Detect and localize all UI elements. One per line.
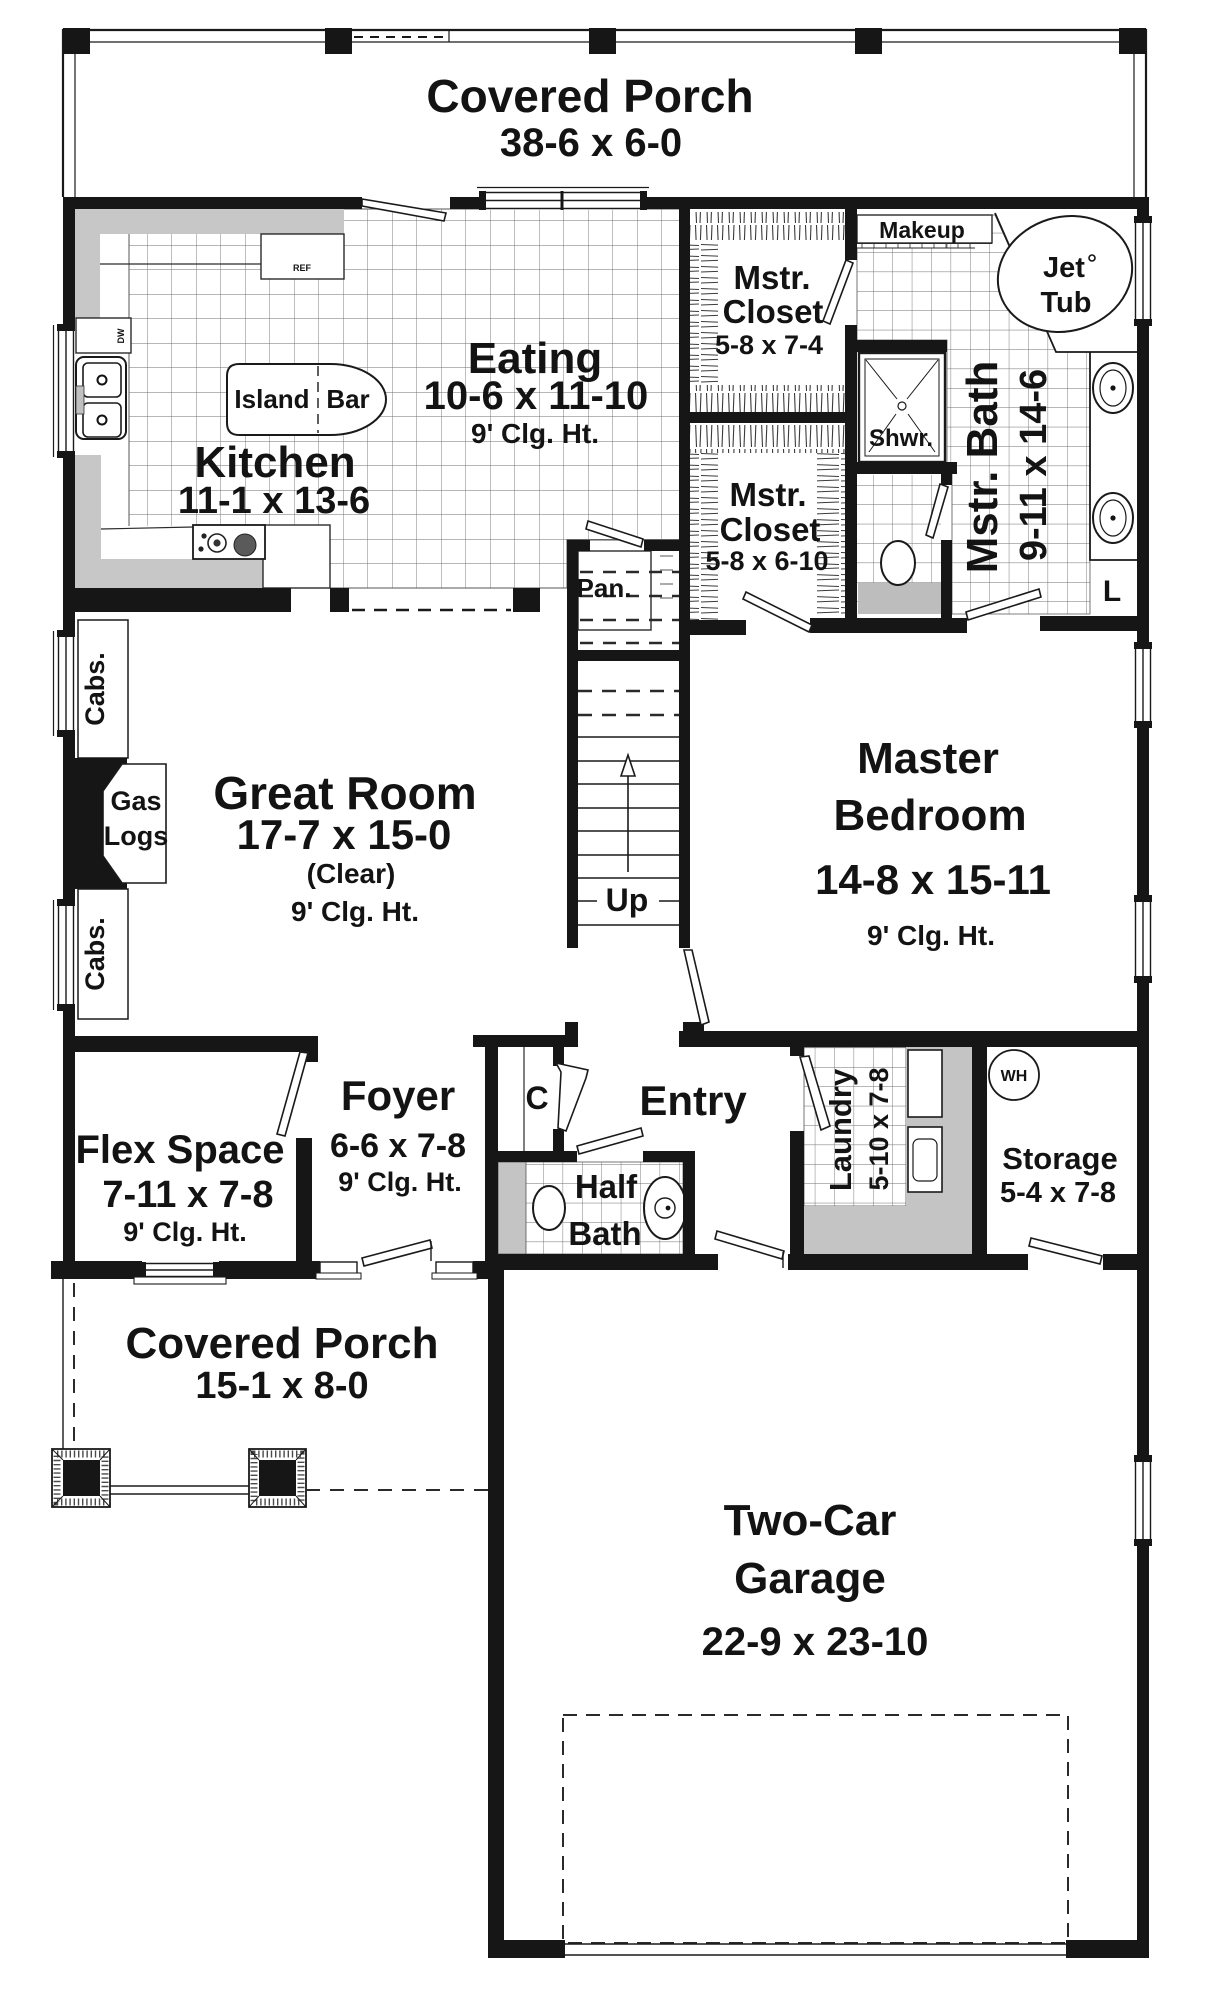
svg-text:Cabs.: Cabs. (80, 652, 110, 726)
svg-text:5-10 x 7-8: 5-10 x 7-8 (864, 1067, 894, 1190)
svg-text:9' Clg. Ht.: 9' Clg. Ht. (338, 1167, 461, 1197)
svg-text:Master: Master (857, 734, 999, 783)
svg-text:5-8 x 6-10: 5-8 x 6-10 (705, 546, 828, 576)
svg-text:Covered Porch: Covered Porch (426, 70, 753, 122)
svg-text:6-6 x 7-8: 6-6 x 7-8 (330, 1127, 466, 1165)
svg-text:Closet: Closet (723, 293, 824, 330)
svg-text:Half: Half (575, 1168, 638, 1205)
svg-text:9' Clg. Ht.: 9' Clg. Ht. (291, 896, 419, 927)
svg-text:Bar: Bar (326, 384, 369, 414)
svg-text:Flex Space: Flex Space (75, 1128, 284, 1172)
svg-text:Laundry: Laundry (823, 1068, 858, 1191)
svg-text:REF: REF (293, 263, 312, 273)
svg-text:15-1 x 8-0: 15-1 x 8-0 (195, 1365, 368, 1407)
svg-text:Two-Car: Two-Car (724, 1496, 897, 1545)
svg-text:9-11 x 14-6: 9-11 x 14-6 (1013, 369, 1055, 561)
svg-text:5-8 x 7-4: 5-8 x 7-4 (715, 330, 823, 360)
svg-text:5-4 x 7-8: 5-4 x 7-8 (1000, 1177, 1116, 1209)
svg-text:Closet: Closet (720, 511, 821, 548)
svg-text:11-1 x 13-6: 11-1 x 13-6 (178, 480, 370, 522)
svg-text:DW: DW (116, 328, 126, 343)
svg-text:9' Clg. Ht.: 9' Clg. Ht. (123, 1217, 246, 1247)
svg-text:Bath: Bath (568, 1215, 641, 1252)
svg-text:Covered Porch: Covered Porch (126, 1319, 439, 1368)
svg-text:14-8 x 15-11: 14-8 x 15-11 (815, 856, 1051, 903)
svg-text:38-6 x 6-0: 38-6 x 6-0 (500, 121, 682, 165)
svg-text:Pan.: Pan. (577, 573, 632, 603)
svg-text:Mstr. Bath: Mstr. Bath (958, 361, 1007, 574)
svg-text:Entry: Entry (639, 1077, 747, 1124)
svg-text:Cabs.: Cabs. (80, 917, 110, 991)
svg-text:Mstr.: Mstr. (729, 476, 806, 513)
svg-text:Island: Island (234, 384, 309, 414)
svg-text:Logs: Logs (104, 821, 169, 851)
svg-text:C: C (525, 1080, 548, 1116)
svg-text:Garage: Garage (734, 1554, 886, 1603)
svg-text:Shwr.: Shwr. (869, 425, 933, 452)
svg-text:7-11 x 7-8: 7-11 x 7-8 (102, 1174, 273, 1216)
svg-text:17-7 x 15-0: 17-7 x 15-0 (237, 811, 452, 858)
svg-text:10-6 x 11-10: 10-6 x 11-10 (424, 374, 649, 418)
svg-text:9' Clg. Ht.: 9' Clg. Ht. (471, 418, 599, 449)
svg-text:Storage: Storage (1002, 1141, 1117, 1176)
svg-text:Gas: Gas (110, 786, 161, 816)
svg-text:L: L (1103, 575, 1121, 608)
svg-text:Tub: Tub (1041, 287, 1092, 319)
svg-text:Up: Up (606, 882, 649, 918)
svg-text:Jet: Jet (1043, 252, 1085, 284)
svg-text:(Clear): (Clear) (307, 858, 396, 889)
svg-text:9' Clg. Ht.: 9' Clg. Ht. (867, 920, 995, 951)
svg-text:Mstr.: Mstr. (733, 259, 810, 296)
svg-text:Makeup: Makeup (879, 217, 965, 243)
svg-text:Foyer: Foyer (341, 1072, 455, 1119)
svg-text:WH: WH (1001, 1068, 1028, 1085)
svg-text:Bedroom: Bedroom (833, 791, 1026, 840)
svg-text:22-9 x 23-10: 22-9 x 23-10 (702, 1620, 929, 1664)
